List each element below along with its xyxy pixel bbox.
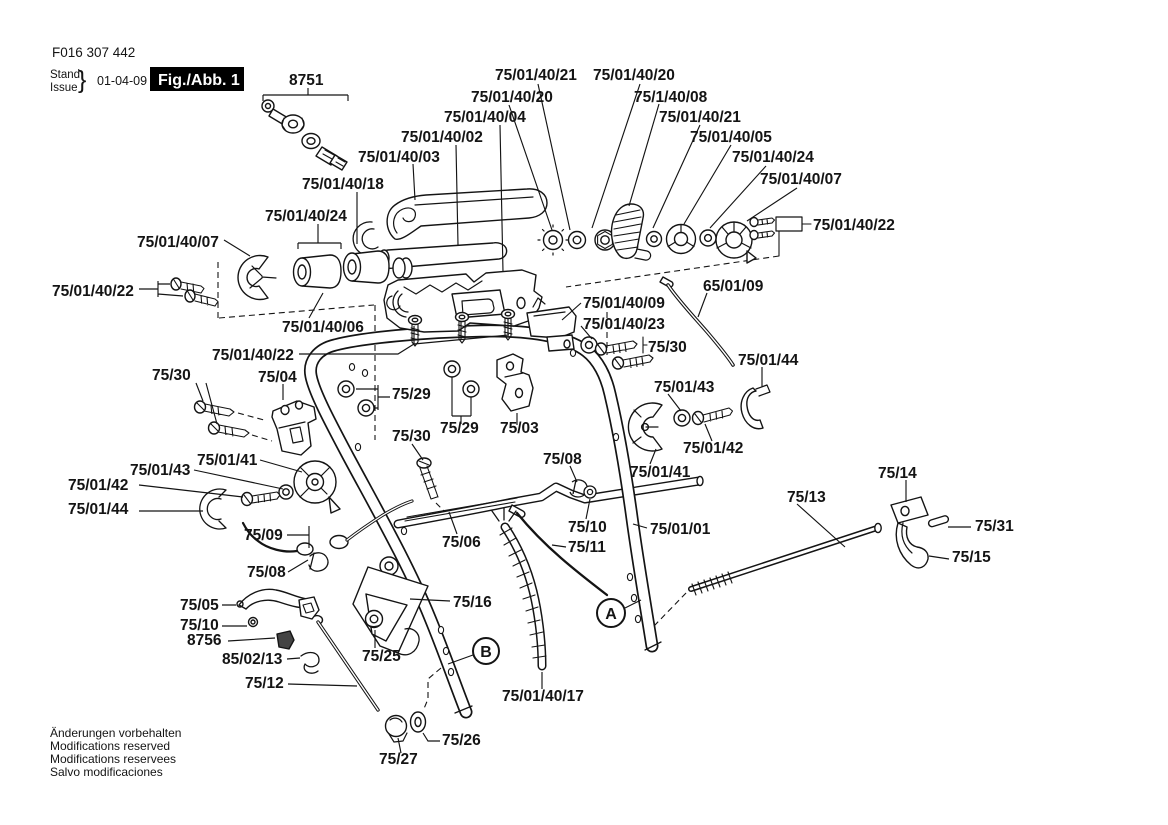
part-label: 65/01/09 [703, 278, 764, 295]
part-label: 75/10 [568, 519, 607, 536]
part-label: 75/01/41 [630, 464, 691, 481]
part-label: 75/01/44 [68, 501, 129, 518]
part-number-labels: 875175/01/40/2175/01/40/2075/01/40/2075/… [52, 67, 1014, 768]
footer-line-fr: Modifications reservees [50, 752, 176, 766]
exploded-parts-diagram: A B F016 307 442 Stand Issue } 01-04-09 … [0, 0, 1168, 825]
part-label: 85/02/13 [222, 651, 283, 668]
part-label: 75/01/40/20 [593, 67, 675, 84]
part-label: 75/14 [878, 465, 917, 482]
document-number: F016 307 442 [52, 45, 135, 60]
figure-label: Fig./Abb. 1 [158, 72, 240, 89]
part-label: 75/08 [247, 564, 286, 581]
footer-line-de: Änderungen vorbehalten [50, 726, 181, 740]
stand-label: Stand [50, 69, 80, 81]
parts-diagram-page: A B F016 307 442 Stand Issue } 01-04-09 … [0, 0, 1168, 825]
part-label: 75/26 [442, 732, 481, 749]
part-label: 75/01/40/05 [690, 129, 772, 146]
part-label: 75/05 [180, 597, 219, 614]
part-label: 75/01/40/07 [137, 234, 219, 251]
part-label: 8756 [187, 632, 222, 649]
coil-cable-75-01-40-17 [492, 508, 546, 666]
part-label: 75/01/40/22 [212, 347, 294, 364]
callout-a-letter: A [605, 606, 617, 623]
part-label: 75/08 [543, 451, 582, 468]
part-label: 75/01/40/22 [52, 283, 134, 300]
footer-line-es: Salvo modificaciones [50, 765, 163, 779]
figure-badge: Fig./Abb. 1 [150, 67, 244, 91]
part-label: 75/15 [952, 549, 991, 566]
part-label: 75/01/40/04 [444, 109, 526, 126]
part-label: 75/01/43 [654, 379, 715, 396]
part-label: 8751 [289, 72, 324, 89]
part-label: 75/01/40/20 [471, 89, 553, 106]
bottom-nut-washer [386, 712, 426, 742]
bracket-75-16 [353, 557, 428, 655]
hardware-set-8751 [262, 100, 347, 170]
part-label: 75/01/40/21 [495, 67, 577, 84]
part-label: 75/29 [440, 420, 479, 437]
issue-date: 01-04-09 [97, 74, 147, 88]
part-label: 75/11 [568, 539, 606, 556]
part-label: 75/1/40/08 [634, 89, 708, 106]
part-label: 75/04 [258, 369, 297, 386]
part-label: 75/01/40/09 [583, 295, 665, 312]
part-label: 75/01/44 [738, 352, 799, 369]
part-label: 75/01/42 [683, 440, 743, 457]
view-callouts [473, 599, 625, 664]
roller-subassembly [171, 251, 412, 317]
height-adjuster-parts-row [538, 204, 811, 263]
part-label: 75/16 [453, 594, 492, 611]
part-label: 75/30 [152, 367, 191, 384]
part-label: 75/25 [362, 648, 401, 665]
part-label: 75/13 [787, 489, 826, 506]
part-label: 75/29 [392, 386, 431, 403]
part-label: 75/01/40/17 [502, 688, 584, 705]
part-label: 75/01/42 [68, 477, 128, 494]
part-label: 75/01/40/23 [583, 316, 665, 333]
part-label: 75/01/40/07 [760, 171, 842, 188]
part-label: 75/01/40/21 [659, 109, 741, 126]
part-label: 75/01/43 [130, 462, 191, 479]
rod-75-13 [691, 523, 881, 595]
stand-issue-brace: } [78, 66, 86, 94]
part-label: 75/31 [975, 518, 1014, 535]
part-label: 75/01/01 [650, 521, 711, 538]
part-label: 75/01/40/06 [282, 319, 364, 336]
part-label: 75/01/40/22 [813, 217, 895, 234]
part-label: 75/01/40/02 [401, 129, 483, 146]
footer-line-en: Modifications reserved [50, 739, 170, 753]
part-label: 75/03 [500, 420, 539, 437]
part-label: 75/01/41 [197, 452, 258, 469]
part-label: 75/27 [379, 751, 418, 768]
part-label: 75/01/40/24 [265, 208, 347, 225]
part-label: 75/01/40/24 [732, 149, 814, 166]
part-label: 75/30 [648, 339, 687, 356]
part-label: 75/01/40/18 [302, 176, 384, 193]
part-label: 75/12 [245, 675, 284, 692]
callout-b-letter: B [480, 644, 492, 661]
part-label: 75/01/40/03 [358, 149, 440, 166]
part-label: 75/30 [392, 428, 431, 445]
issue-label: Issue [50, 82, 78, 94]
part-label: 75/09 [244, 527, 283, 544]
part-label: 75/06 [442, 534, 481, 551]
crossbar-75-06 [398, 476, 703, 524]
footer-notes: Änderungen vorbehalten Modifications res… [50, 726, 181, 779]
